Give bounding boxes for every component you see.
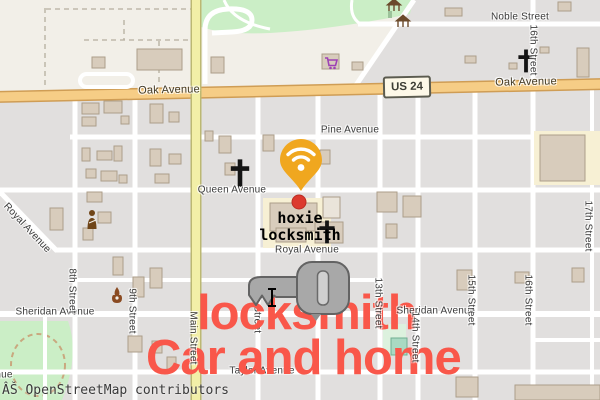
map-attribution: ÂŠ OpenStreetMap contributors xyxy=(2,383,229,398)
key-icon xyxy=(249,262,349,321)
red-dot-marker[interactable] xyxy=(292,195,306,209)
overlay-graphics xyxy=(0,0,600,400)
map-canvas[interactable]: locksmith Car and home Noble Street Oak … xyxy=(0,0,600,400)
poi-name-line2: locksmith xyxy=(259,228,340,243)
poi-name-line1: hoxie xyxy=(277,211,322,226)
wifi-location-pin[interactable] xyxy=(280,139,322,191)
